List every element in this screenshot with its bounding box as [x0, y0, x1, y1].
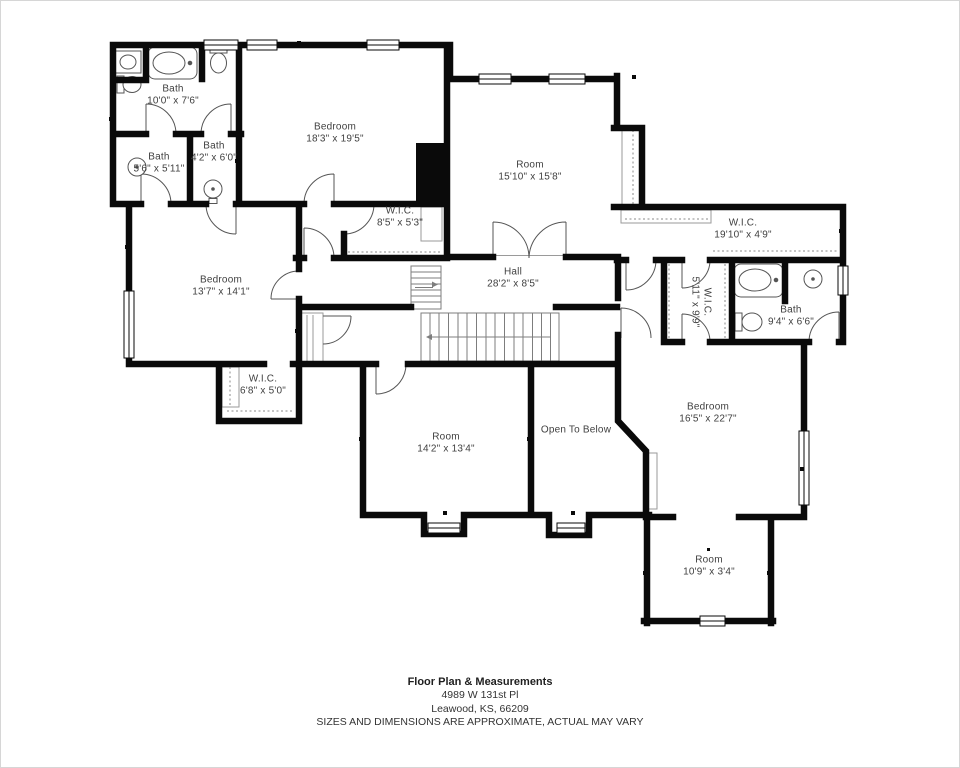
room-label-bedroom-3: Bedroom16'5" x 22'7" [679, 402, 736, 425]
room-label-wic-3: W.I.C.5'11" x 9'9" [690, 277, 713, 328]
floor-plan-drawing [1, 1, 959, 767]
room-label-room-1: Room15'10" x 15'8" [498, 160, 561, 183]
plan-footer: Floor Plan & Measurements 4989 W 131st P… [1, 675, 959, 730]
sink-icon [115, 51, 822, 288]
chimney-block [416, 143, 444, 203]
room-label-open-to-below: Open To Below [541, 424, 611, 436]
walls [113, 45, 843, 623]
room-label-bedroom-1: Bedroom18'3" x 19'5" [306, 122, 363, 145]
room-label-hall: Hall28'2" x 8'5" [487, 267, 539, 290]
floor-plan-canvas: Bath10'0" x 7'6" Bath5'6" x 5'11" Bath4'… [0, 0, 960, 768]
room-label-room-3: Room10'9" x 3'4" [683, 555, 735, 578]
room-label-room-2: Room14'2" x 13'4" [417, 432, 474, 455]
room-label-bath-left: Bath5'6" x 5'11" [134, 152, 185, 175]
footer-address-street: 4989 W 131st Pl [1, 689, 959, 703]
room-label-bedroom-2: Bedroom13'7" x 14'1" [192, 275, 249, 298]
footer-address-city: Leawood, KS, 66209 [1, 703, 959, 717]
room-label-bath-primary: Bath10'0" x 7'6" [147, 84, 199, 107]
room-label-wic-4: W.I.C.6'8" x 5'0" [240, 374, 286, 397]
footer-disclaimer: SIZES AND DIMENSIONS ARE APPROXIMATE, AC… [1, 716, 959, 730]
room-label-bath-suite: Bath9'4" x 6'6" [768, 305, 814, 328]
room-label-bath-small: Bath4'2" x 6'0" [191, 141, 237, 164]
room-label-wic-1: W.I.C.8'5" x 5'3" [377, 206, 423, 229]
room-label-wic-2: W.I.C.19'10" x 4'9" [714, 218, 771, 241]
door-arc-icon [141, 104, 839, 394]
footer-title: Floor Plan & Measurements [1, 675, 959, 689]
